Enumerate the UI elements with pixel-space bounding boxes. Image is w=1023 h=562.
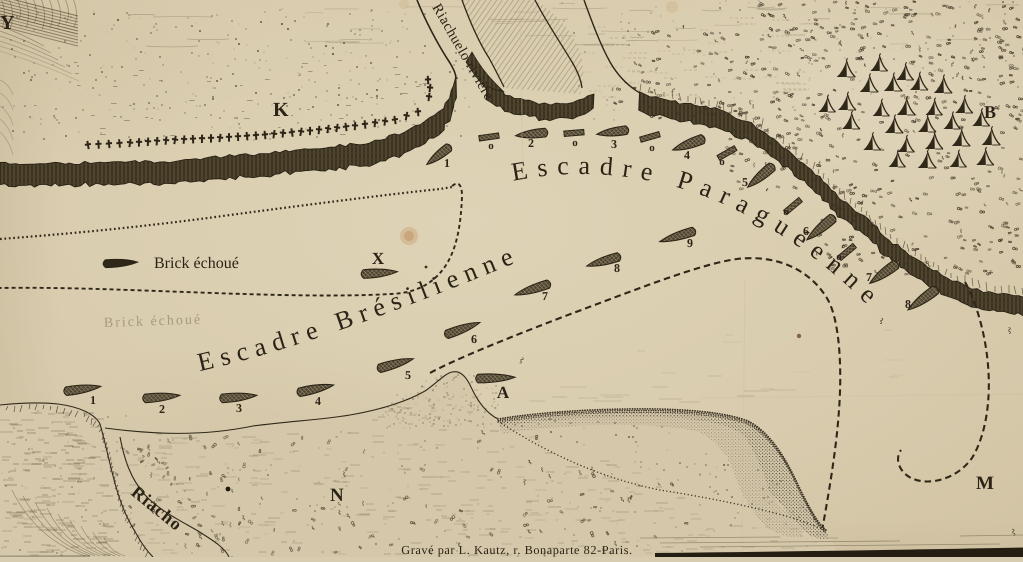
svg-text:Y: Y (0, 12, 15, 34)
svg-text:o: o (649, 142, 655, 154)
svg-text:2: 2 (528, 136, 534, 150)
svg-text:o: o (572, 137, 578, 149)
svg-text:8: 8 (905, 297, 911, 311)
svg-text:4: 4 (315, 394, 321, 408)
svg-text:3: 3 (236, 401, 242, 415)
svg-text:4: 4 (684, 148, 690, 162)
svg-text:B: B (984, 102, 996, 122)
svg-text:1: 1 (444, 156, 450, 170)
svg-text:6: 6 (471, 332, 477, 346)
svg-text:5: 5 (742, 175, 748, 189)
svg-text:Gravé par L. Kautz, r. Bonapar: Gravé par L. Kautz, r. Bonaparte 82-Pari… (401, 543, 632, 557)
svg-text:M: M (976, 473, 994, 494)
svg-text:o: o (488, 140, 494, 152)
svg-text:N: N (330, 485, 344, 506)
svg-text:X: X (372, 249, 385, 268)
svg-text:2: 2 (159, 402, 165, 416)
svg-text:5: 5 (405, 368, 411, 382)
svg-text:A: A (497, 383, 510, 402)
svg-text:8: 8 (614, 261, 620, 275)
svg-text:3: 3 (611, 137, 617, 151)
svg-text:7: 7 (542, 289, 548, 303)
svg-text:o: o (719, 156, 725, 168)
svg-text:K: K (273, 99, 289, 121)
svg-text:Brick échoué: Brick échoué (154, 255, 239, 272)
svg-text:1: 1 (90, 393, 96, 407)
svg-text:9: 9 (687, 236, 693, 250)
